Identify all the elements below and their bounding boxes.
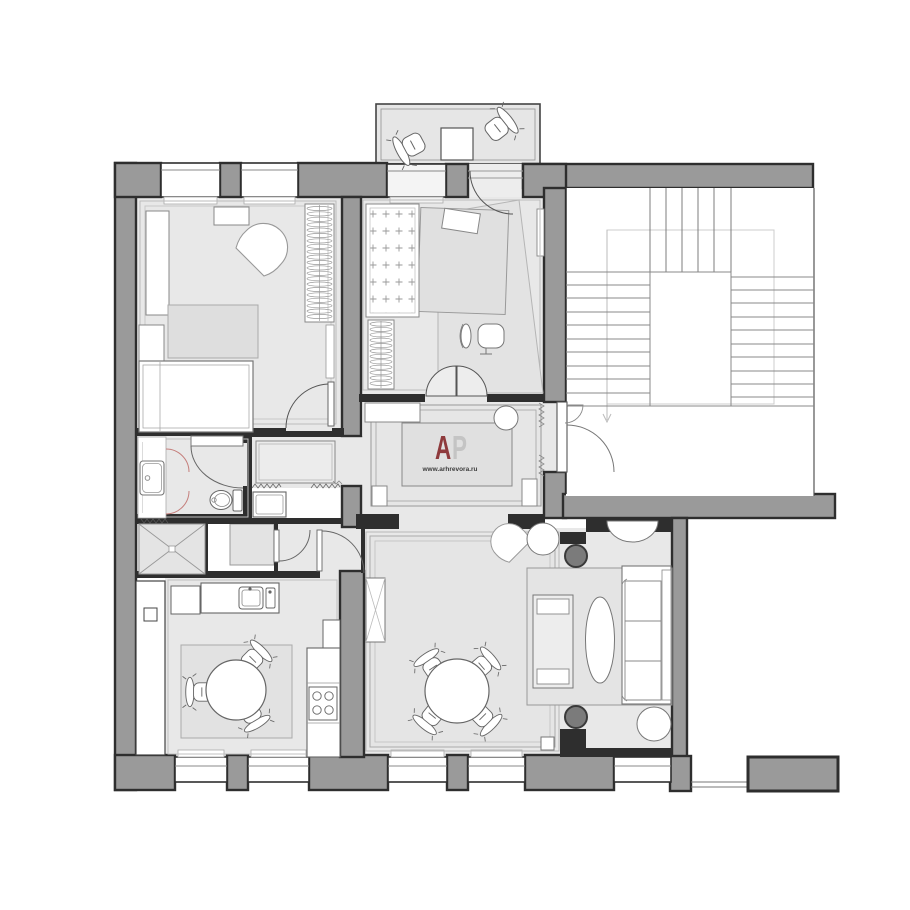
- svg-text:www.arhrevora.ru: www.arhrevora.ru: [421, 466, 477, 473]
- svg-text:A: A: [435, 429, 451, 466]
- svg-text:P: P: [452, 429, 467, 466]
